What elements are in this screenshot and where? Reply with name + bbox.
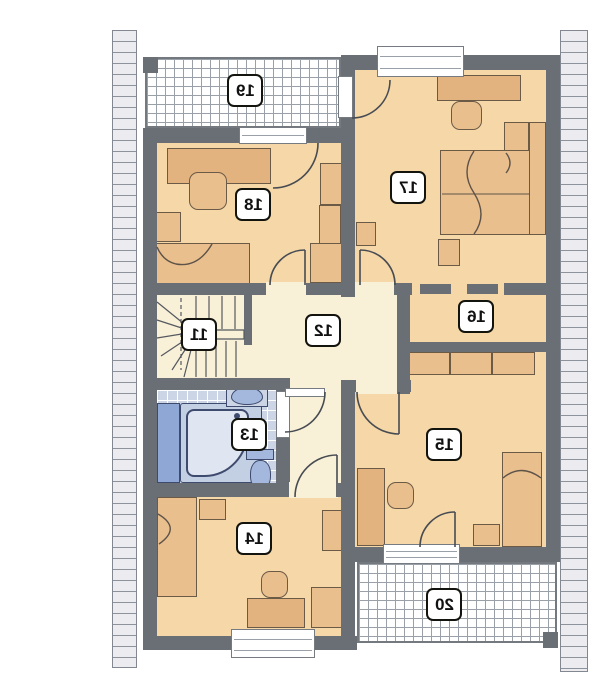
room-label-12: 12 <box>305 314 341 347</box>
wall <box>143 636 233 650</box>
room-label-11: 11 <box>181 318 217 351</box>
room-label-17: 17 <box>390 171 426 204</box>
room-number: 12 <box>314 321 333 341</box>
sliding-door-leaf <box>467 284 498 294</box>
wall <box>341 382 355 650</box>
desk <box>437 75 521 101</box>
wardrobe <box>311 587 343 628</box>
wall <box>462 55 560 70</box>
wall <box>305 283 355 295</box>
door-leaf <box>338 76 353 118</box>
room-number: 18 <box>244 195 263 215</box>
wall <box>313 636 357 650</box>
window <box>231 629 315 658</box>
room-number: 16 <box>467 307 486 327</box>
sliding-door-leaf <box>420 284 451 294</box>
door-leaf <box>276 391 290 438</box>
door-opening <box>266 282 306 297</box>
nightstand <box>199 499 226 520</box>
room-label-18: 18 <box>235 188 271 221</box>
room-number: 19 <box>236 81 255 101</box>
wall <box>341 55 380 70</box>
wardrobe <box>492 352 535 375</box>
headboard <box>529 122 546 235</box>
nightstand <box>473 524 500 546</box>
room-number: 14 <box>245 529 264 549</box>
wardrobe <box>450 352 492 375</box>
wall <box>143 483 290 497</box>
room-label-15: 15 <box>426 428 462 461</box>
double-bed <box>440 150 530 235</box>
nightstand <box>356 222 376 246</box>
wardrobe <box>320 163 343 205</box>
room-number: 17 <box>399 178 418 198</box>
bath-cabinet <box>157 403 180 483</box>
wall <box>341 380 357 392</box>
wall <box>143 378 290 390</box>
wardrobe <box>319 205 341 245</box>
door-opening <box>289 482 338 498</box>
door-opening <box>356 380 397 394</box>
desk <box>247 598 305 628</box>
chair <box>451 101 482 130</box>
bed <box>155 243 250 286</box>
nightstand <box>438 239 460 266</box>
balcony-door <box>383 544 460 564</box>
wall-post <box>143 57 158 73</box>
room-number: 20 <box>435 595 454 615</box>
nightstand <box>504 122 529 151</box>
room-label-13: 13 <box>231 418 267 451</box>
balcony-door <box>239 127 307 144</box>
wall <box>408 342 546 352</box>
roof-hatch-right <box>560 30 588 672</box>
wardrobe <box>310 243 342 283</box>
room-number: 15 <box>435 435 454 455</box>
floor-plan: 11 12 13 14 15 16 17 18 19 20 <box>0 0 611 700</box>
room-number: 11 <box>190 325 208 345</box>
bed <box>157 497 197 597</box>
wall <box>546 55 560 562</box>
chair <box>387 482 414 509</box>
room-label-16: 16 <box>458 300 494 333</box>
wardrobe <box>408 352 450 375</box>
nightstand <box>156 212 181 242</box>
wall <box>397 283 410 394</box>
room-label-20: 20 <box>426 588 462 621</box>
wall-post <box>543 632 558 648</box>
door-opening <box>355 282 394 296</box>
room-number: 13 <box>240 425 259 445</box>
wall <box>337 483 355 497</box>
room-label-19: 19 <box>227 74 263 107</box>
wall <box>341 547 385 562</box>
wall <box>458 547 560 562</box>
bed <box>502 452 542 547</box>
desk <box>357 468 385 546</box>
room-label-14: 14 <box>236 522 272 555</box>
window <box>377 46 464 77</box>
roof-hatch-left <box>112 30 137 668</box>
wall <box>396 380 411 392</box>
wall <box>143 283 267 295</box>
chair <box>261 571 288 598</box>
wardrobe <box>322 510 343 551</box>
wall <box>502 283 560 295</box>
wall <box>244 288 252 345</box>
door-leaf <box>285 388 325 397</box>
chair <box>189 172 227 210</box>
